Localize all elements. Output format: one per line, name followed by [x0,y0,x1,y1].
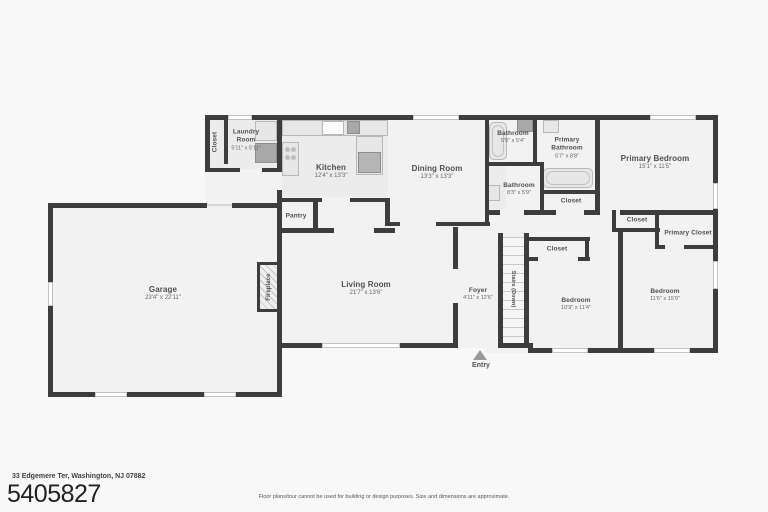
room-name: Bedroom [650,288,680,295]
disclaimer-text: Floor plans/tour cannot be used for buil… [0,494,768,500]
room-label-garage: Garage 23'4" x 22'11" [145,285,181,301]
room-label-closet-strip: Closet [627,217,647,224]
room-label-bedroom-left: Bedroom 10'9" x 11'4" [561,297,591,311]
room-dims: 15'1" x 11'5" [621,164,690,170]
room-label-bathroom-hall: Bathroom 8'3" x 5'9" [503,182,535,196]
room-name: Closet [212,132,219,152]
room-name: Garage [145,285,181,294]
window [552,348,588,353]
window [322,343,400,348]
window [650,115,696,120]
property-address: 33 Edgemere Ter, Washington, NJ 07882 [12,473,145,480]
floor-plan-page: Garage 23'4" x 22'11" Living Room 21'7" … [0,0,768,512]
room-name: Kitchen [315,163,348,172]
room-name: Bedroom [561,297,591,304]
room-name: Pantry [286,213,307,220]
burner-icon [291,147,296,152]
window [713,183,718,209]
window [204,392,236,397]
room-label-primary-closet: Primary Closet [664,230,711,237]
room-name: Laundry Room [223,129,269,145]
room-name: Bathroom [503,182,535,189]
room-dims: 5'7" x 8'8" [539,153,595,159]
room-name: Bathroom [497,130,529,137]
room-label-stairs: Stairs (Down) [510,271,516,308]
room-dims: 5'11" x 5'11" [223,145,269,151]
room-label-primary-bedroom: Primary Bedroom 15'1" x 11'5" [621,154,690,170]
room-dims: 11'6" x 15'9" [650,296,680,302]
room-name: Stairs (Down) [510,271,516,308]
fridge-fixture [358,152,381,173]
room-name: Primary Bedroom [621,154,690,163]
room-label-living-room: Living Room 21'7" x 13'6" [341,280,391,296]
room-label-kitchen: Kitchen 12'4" x 13'3" [315,163,348,179]
room-name: Foyer [463,287,493,294]
room-dims: 4'11" x 12'6" [463,295,493,301]
room-label-closet-bedroom-left: Closet [547,246,567,253]
room-label-primary-bathroom: Primary Bathroom 5'7" x 8'8" [539,137,595,160]
window [654,348,690,353]
room-label-fireplace: Fireplace [266,273,272,300]
room-living-block [277,222,533,348]
burner-icon [291,155,296,160]
room-dims: 12'4" x 13'3" [315,173,348,179]
room-name: Closet [561,198,581,205]
room-dims: 23'4" x 22'11" [145,295,181,301]
bathroom-sink-fixture [543,120,559,133]
room-label-closet-hall: Closet [561,198,581,205]
window [713,261,718,289]
room-name: Closet [627,217,647,224]
room-name: Dining Room [412,164,463,173]
room-name: Fireplace [266,273,272,300]
window [48,282,53,306]
room-label-pantry: Pantry [286,213,307,220]
entry-label: Entry [472,362,490,369]
window [413,115,459,120]
room-dims: 21'7" x 13'6" [341,290,391,296]
room-label-bedroom-right: Bedroom 11'6" x 15'9" [650,288,680,302]
room-label-closet-laundry: Closet [212,132,219,152]
room-dims: 10'9" x 11'4" [561,305,591,311]
room-label-dining-room: Dining Room 13'3" x 13'3" [412,164,463,180]
window [228,115,252,120]
room-label-foyer: Foyer 4'11" x 12'6" [463,287,493,301]
burner-icon [285,147,290,152]
window [95,392,127,397]
burner-icon [285,155,290,160]
entry-arrow-icon [473,350,487,360]
room-dims: 8'3" x 5'9" [503,190,535,196]
room-label-bathroom-top: Bathroom 5'5" x 5'4" [497,130,529,144]
kitchen-sink-fixture [322,121,344,135]
room-name: Primary Bathroom [539,137,595,153]
room-name: Closet [547,246,567,253]
dishwasher-fixture [347,121,360,134]
room-dims: 5'5" x 5'4" [497,138,529,144]
garage-door-line [207,204,232,206]
room-name: Living Room [341,280,391,289]
stove-fixture [282,142,299,176]
room-name: Primary Closet [664,230,711,237]
room-label-laundry-room: Laundry Room 5'11" x 5'11" [223,129,269,152]
room-dims: 13'3" x 13'3" [412,174,463,180]
primary-bathtub-fixture [543,168,593,188]
